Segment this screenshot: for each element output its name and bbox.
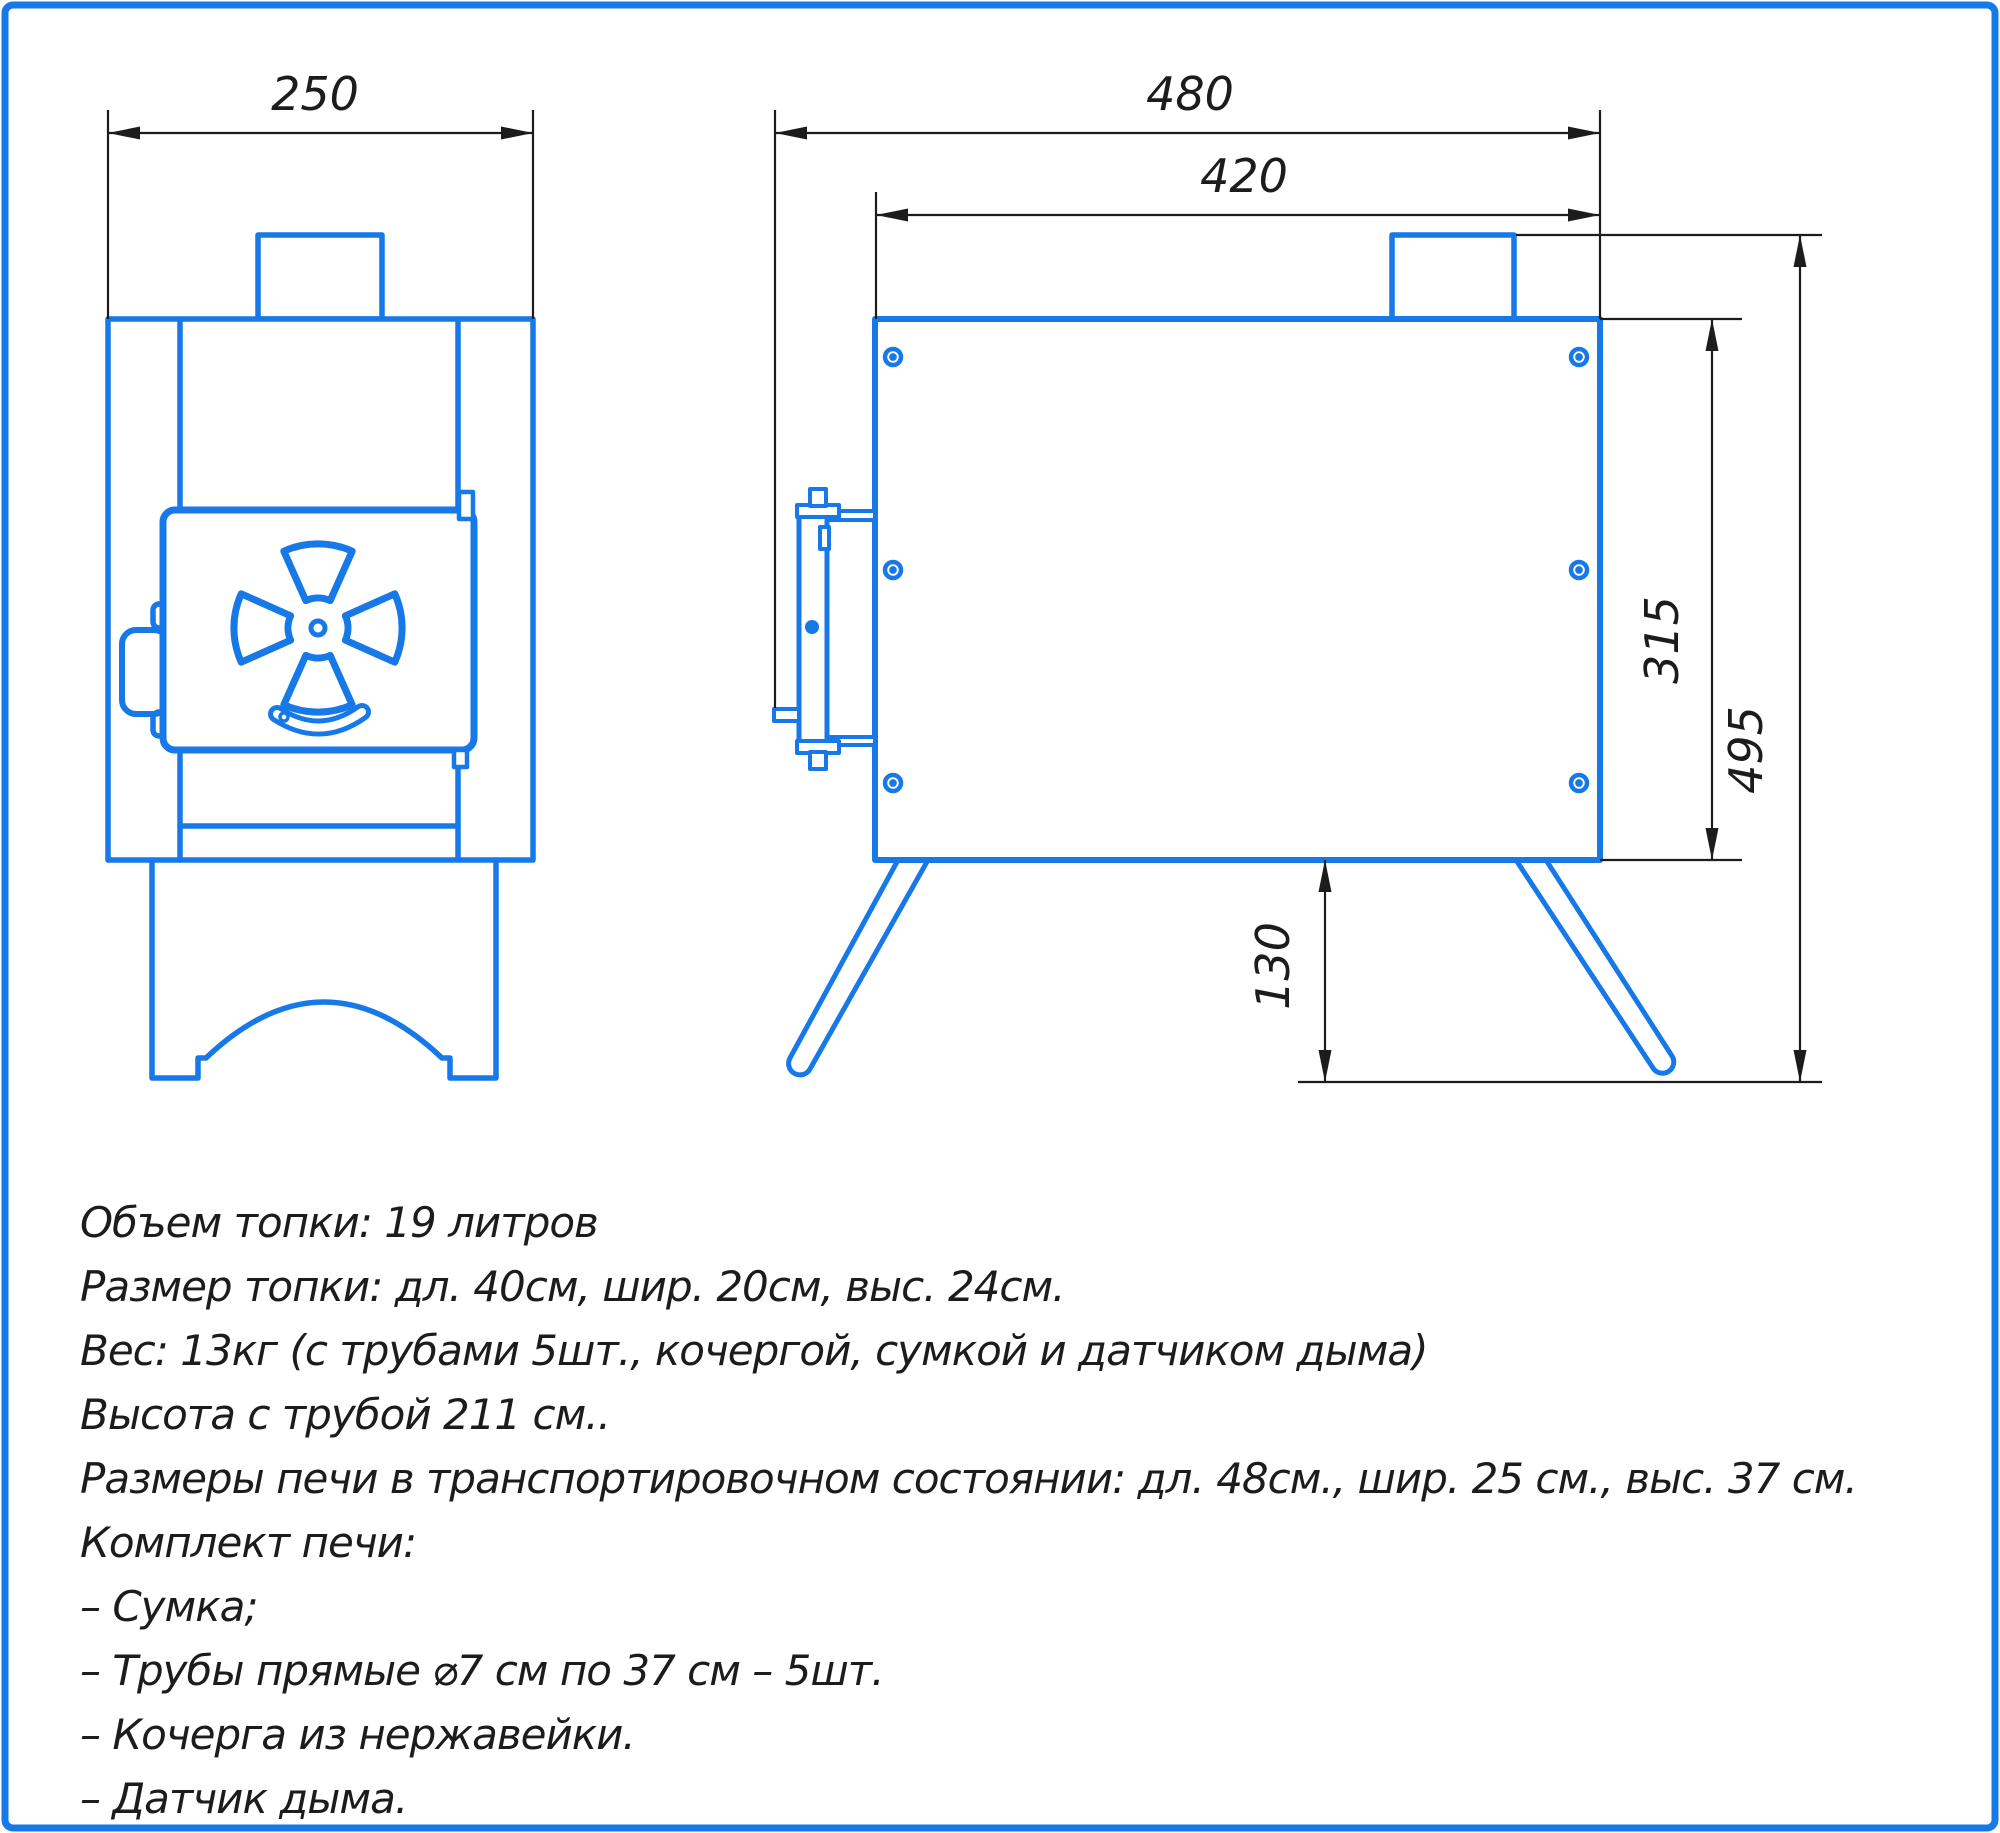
plate-tab-top	[810, 489, 826, 506]
spec-line: – Сумка;	[80, 1582, 257, 1631]
latch-step	[820, 527, 829, 549]
door-hardware-side	[774, 489, 875, 769]
dim-label-420: 420	[1200, 149, 1288, 203]
side-view	[774, 235, 1674, 1075]
dim-label-315: 315	[1635, 596, 1689, 684]
dim-label-250: 250	[271, 67, 359, 121]
dimension-body-length: 420	[876, 149, 1600, 222]
damper-pin	[280, 713, 288, 721]
spec-line: Вес: 13кг (с трубами 5шт., кочергой, сум…	[80, 1326, 1428, 1375]
door-latch-bottom	[454, 750, 467, 767]
fan-hub	[311, 621, 325, 635]
dim-label-130: 130	[1246, 922, 1300, 1010]
dimension-leg-height: 130	[1246, 860, 1332, 1082]
dimension-front-width: 250	[108, 67, 533, 140]
drawing-page: 250 480 420 315 495	[0, 0, 2000, 1833]
plate-tab-bottom	[810, 752, 826, 769]
door-latch-top	[459, 492, 473, 519]
front-view	[108, 235, 533, 1078]
spec-text-block: Объем топки: 19 литров Размер топки: дл.…	[80, 1198, 1857, 1823]
leg-front	[789, 860, 928, 1075]
chimney-collar-front	[258, 235, 382, 319]
hinge-pin	[805, 620, 819, 634]
spec-line: – Кочерга из нержавейки.	[80, 1710, 635, 1759]
dim-label-495: 495	[1719, 706, 1773, 794]
dimension-body-height: 315	[1635, 319, 1719, 860]
leg-rear	[1516, 860, 1674, 1073]
handle-stub	[774, 709, 799, 721]
dimension-overall-length: 480	[775, 67, 1600, 140]
spec-line: Размеры печи в транспортировочном состоя…	[80, 1454, 1857, 1503]
spec-line: Высота с трубой 211 см..	[80, 1390, 610, 1439]
stove-stand	[152, 860, 496, 1078]
spec-line: Размер топки: дл. 40см, шир. 20см, выс. …	[80, 1262, 1065, 1311]
dim-label-480: 480	[1146, 67, 1234, 121]
stove-drawing: 250 480 420 315 495	[0, 0, 2000, 1833]
spec-line: Комплект печи:	[80, 1518, 416, 1567]
spec-line: – Датчик дыма.	[80, 1774, 407, 1823]
spec-line: – Трубы прямые ⌀7 см по 37 см – 5шт.	[80, 1646, 884, 1695]
stove-body-side	[875, 319, 1600, 860]
dimension-overall-height: 495	[1719, 235, 1807, 1082]
spec-line: Объем топки: 19 литров	[80, 1198, 598, 1247]
chimney-collar-side	[1392, 235, 1514, 319]
